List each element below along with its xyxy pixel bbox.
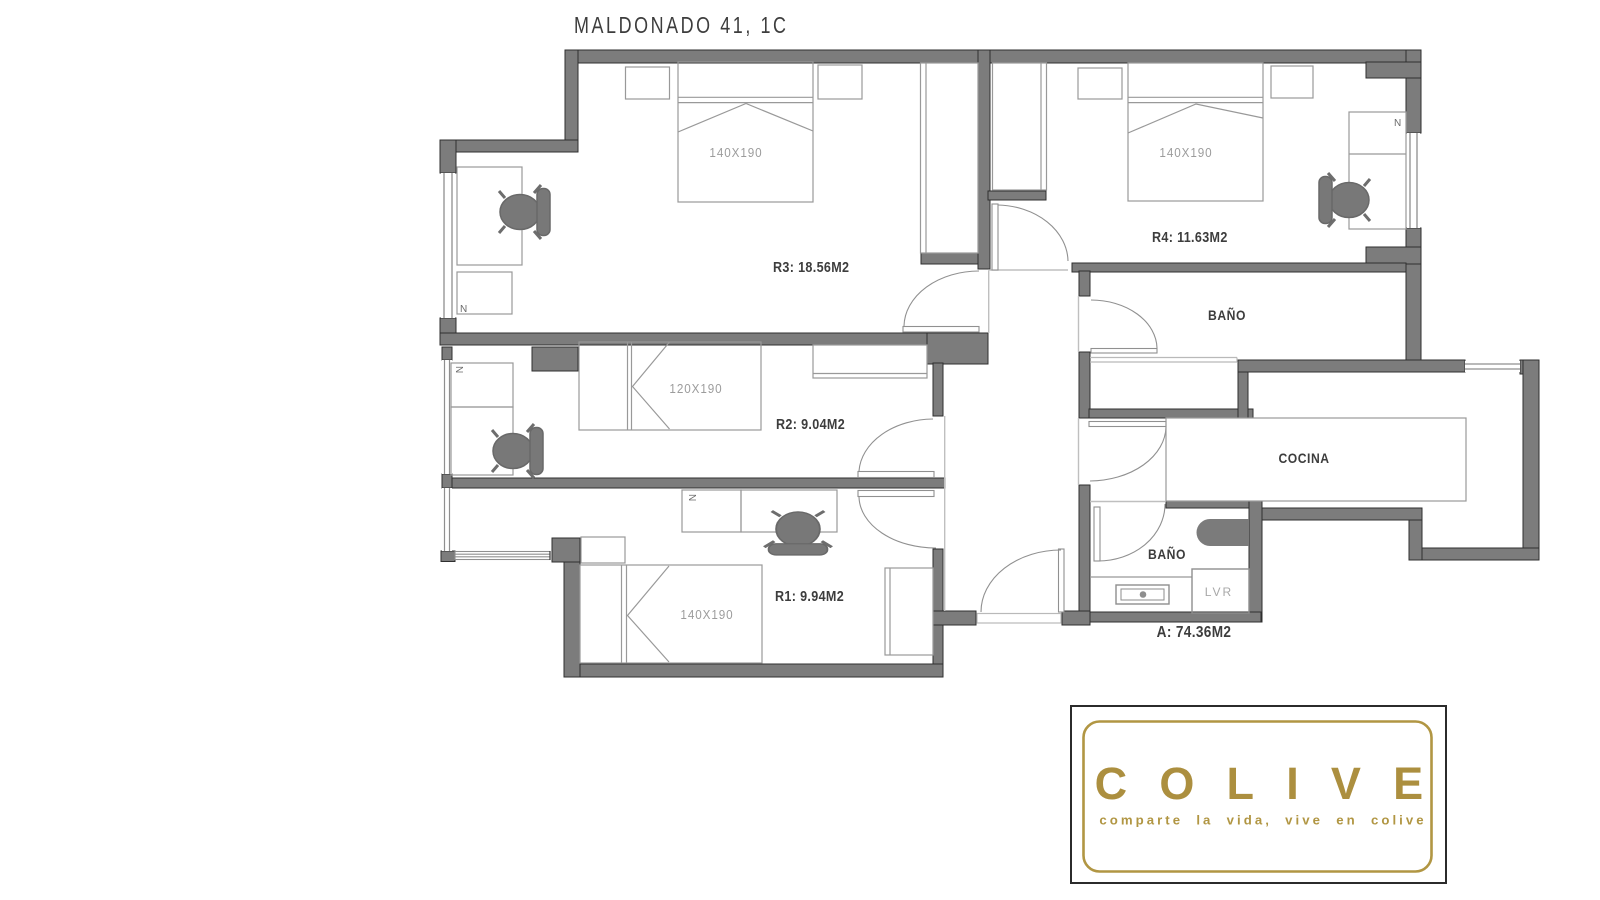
svg-text:COLIVE: COLIVE bbox=[1095, 758, 1456, 809]
svg-text:140X190: 140X190 bbox=[709, 145, 762, 160]
svg-text:R1: 9.94M2: R1: 9.94M2 bbox=[775, 588, 844, 604]
svg-text:A: 74.36M2: A: 74.36M2 bbox=[1157, 624, 1232, 641]
svg-text:LVR: LVR bbox=[1205, 585, 1233, 599]
svg-text:COCINA: COCINA bbox=[1278, 450, 1329, 466]
svg-text:N: N bbox=[1394, 118, 1401, 129]
svg-text:R3: 18.56M2: R3: 18.56M2 bbox=[773, 259, 849, 275]
svg-text:comparte la vida, vive en coli: comparte la vida, vive en colive bbox=[1099, 813, 1426, 828]
svg-text:140X190: 140X190 bbox=[680, 607, 733, 622]
svg-text:BAÑO: BAÑO bbox=[1148, 546, 1186, 562]
svg-text:N: N bbox=[453, 366, 464, 373]
svg-text:N: N bbox=[460, 304, 467, 315]
svg-text:MALDONADO 41, 1C: MALDONADO 41, 1C bbox=[574, 13, 789, 39]
svg-text:N: N bbox=[686, 494, 697, 501]
svg-text:140X190: 140X190 bbox=[1159, 145, 1212, 160]
svg-text:BAÑO: BAÑO bbox=[1208, 307, 1246, 323]
svg-text:120X190: 120X190 bbox=[669, 381, 722, 396]
svg-text:R2: 9.04M2: R2: 9.04M2 bbox=[776, 416, 845, 432]
svg-text:R4: 11.63M2: R4: 11.63M2 bbox=[1152, 229, 1228, 245]
